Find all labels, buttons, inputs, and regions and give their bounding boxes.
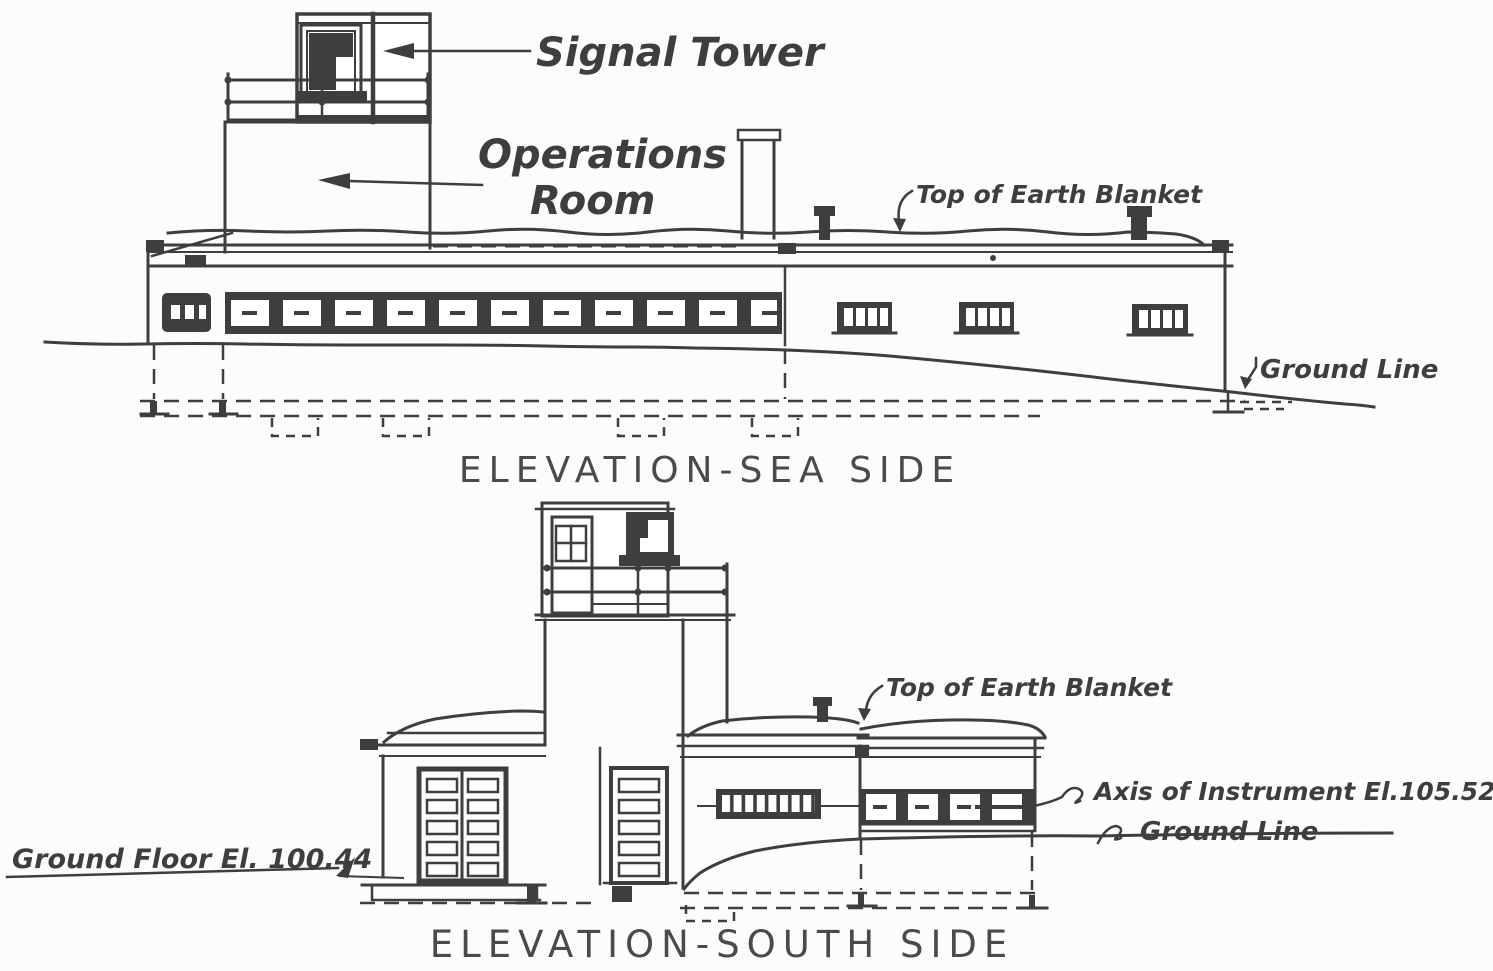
earth-blanket-line <box>861 720 1045 737</box>
annotation-earth-blanket-sea: Top of Earth Blanket <box>893 180 1203 232</box>
footing-pad <box>272 418 318 436</box>
cab-window-south <box>619 512 680 566</box>
roof-vent <box>814 206 835 240</box>
right-wing <box>858 720 1045 831</box>
arrowhead <box>893 218 906 232</box>
arrowhead <box>858 708 871 721</box>
wing-windows <box>833 302 1192 335</box>
arrowhead <box>318 173 350 189</box>
south-side-title: ELEVATION-SOUTH SIDE <box>430 923 1015 966</box>
window <box>1128 304 1192 335</box>
footing-pad <box>752 418 798 436</box>
annotation-axis-instrument: Axis of Instrument El.105.52 <box>1034 777 1493 806</box>
signal-tower-cab <box>297 14 430 123</box>
axis-instrument-label: Axis of Instrument El.105.52 <box>1092 777 1493 806</box>
window <box>955 302 1018 333</box>
operations-label-line2: Room <box>530 178 655 224</box>
window-band-side <box>860 789 1035 824</box>
earth-blanket-label: Top of Earth Blanket <box>916 180 1203 209</box>
sea-side-title: ELEVATION-SEA SIDE <box>459 450 961 491</box>
louvered-door <box>611 768 667 883</box>
sea-side-elevation: Signal Tower Operations Room Top of Eart… <box>45 14 1438 491</box>
ground-line-sea <box>45 342 1374 407</box>
strip-window-band <box>162 292 782 334</box>
elevation-drawing-svg: Signal Tower Operations Room Top of Eart… <box>0 0 1493 971</box>
signal-tower-label: Signal Tower <box>536 30 826 76</box>
ground-line-label: Ground Line <box>1260 355 1438 385</box>
earth-blanket-hump <box>688 717 858 736</box>
roof-vent <box>1127 206 1152 240</box>
annotation-ground-floor: Ground Floor El. 100.44 <box>7 844 403 878</box>
footing-pad <box>618 418 664 436</box>
earth-blanket-label: Top of Earth Blanket <box>886 673 1173 702</box>
middle-building <box>678 697 869 838</box>
leader-squiggle <box>1034 788 1082 806</box>
drawing-sheet: Signal Tower Operations Room Top of Eart… <box>0 0 1493 971</box>
operations-label-line1: Operations <box>478 132 727 178</box>
annotation-ground-line-south: Ground Line <box>1098 817 1318 847</box>
footing-pad <box>383 418 429 436</box>
annotation-operations-room: Operations Room <box>318 132 727 224</box>
annotation-signal-tower: Signal Tower <box>383 30 826 76</box>
earth-blanket-hump <box>384 711 543 742</box>
window <box>833 302 896 333</box>
leader-curve <box>899 191 912 221</box>
leader-line <box>349 181 482 185</box>
tower-shaft <box>545 620 683 902</box>
tower-cab-south <box>536 503 734 620</box>
ground-floor-label: Ground Floor El. 100.44 <box>12 844 372 875</box>
annotation-ground-line-sea: Ground Line <box>1240 355 1438 389</box>
foundation-sea <box>140 345 1292 436</box>
strip-window-south <box>716 789 821 819</box>
double-door <box>419 769 506 881</box>
left-building <box>360 711 545 900</box>
annotation-earth-blanket-south: Top of Earth Blanket <box>858 673 1173 721</box>
earth-blanket-line <box>168 229 1204 245</box>
chimney <box>742 138 774 238</box>
ground-line-label: Ground Line <box>1140 817 1318 847</box>
south-side-elevation: Top of Earth Blanket Axis of Instrument … <box>7 503 1493 966</box>
